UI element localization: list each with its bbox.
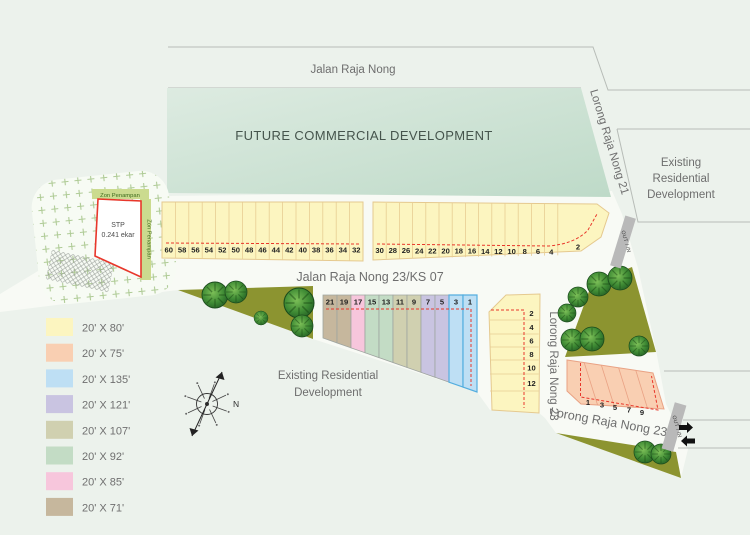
lot-number: 21 bbox=[326, 298, 335, 307]
site-plan-map: Jalan Raja Nong FUTURE COMMERCIAL DEVELO… bbox=[0, 0, 750, 535]
tree-icon bbox=[629, 336, 649, 356]
lot-number: 8 bbox=[529, 350, 533, 359]
legend-swatch bbox=[46, 472, 73, 490]
road-jalan-raja-nong-label: Jalan Raja Nong bbox=[310, 64, 395, 76]
lot-number: 3 bbox=[454, 298, 458, 307]
legend-swatch bbox=[46, 421, 73, 439]
site-plan-page: Jalan Raja Nong FUTURE COMMERCIAL DEVELO… bbox=[0, 0, 750, 535]
lot-cell bbox=[435, 295, 449, 382]
tree-icon bbox=[580, 327, 604, 351]
buffer-right-label: Zon Penampan bbox=[146, 219, 152, 259]
lot-number: 38 bbox=[312, 246, 320, 255]
compass-tick bbox=[184, 395, 186, 397]
compass-tick bbox=[185, 413, 187, 415]
lot-cell bbox=[463, 295, 477, 392]
lot-number: 20 bbox=[441, 247, 449, 256]
lot-number: 6 bbox=[536, 247, 540, 256]
tree-icon bbox=[558, 304, 576, 322]
compass-north-label: N bbox=[233, 399, 239, 409]
lot-number: 48 bbox=[245, 246, 253, 255]
lot-number: 15 bbox=[368, 298, 377, 307]
lot-number: 18 bbox=[455, 247, 463, 256]
lot-number: 17 bbox=[354, 298, 362, 307]
lot-number: 11 bbox=[396, 298, 405, 307]
lot-number: 22 bbox=[428, 246, 436, 255]
legend-swatch bbox=[46, 395, 73, 413]
lot-number: 58 bbox=[178, 246, 186, 255]
existing-right-line3: Development bbox=[647, 189, 716, 201]
area-stp: Zon Penampan Zon Penampan STP 0.241 ekar bbox=[29, 168, 179, 307]
legend-label: 20' X 107' bbox=[82, 425, 130, 437]
compass-tick bbox=[216, 424, 218, 426]
legend-label: 20' X 80' bbox=[82, 323, 124, 335]
lot-number: 34 bbox=[339, 246, 348, 255]
lot-number: 12 bbox=[494, 247, 502, 256]
road-jalan-23-label: Jalan Raja Nong 23/KS 07 bbox=[296, 270, 443, 284]
lot-block-right: 24681012 bbox=[489, 294, 540, 413]
lot-number: 3 bbox=[600, 401, 604, 410]
legend-label: 20' X 71' bbox=[82, 502, 124, 514]
existing-left-line2: Development bbox=[294, 387, 363, 399]
legend-label: 20' X 75' bbox=[82, 348, 124, 360]
tree-icon bbox=[225, 281, 247, 303]
tree-icon bbox=[291, 315, 313, 337]
legend-label: 20' X 121' bbox=[82, 400, 130, 412]
lot-row-top-left: 605856545250484644424038363432 bbox=[162, 202, 363, 261]
lot-number: 24 bbox=[415, 246, 424, 255]
legend-swatch bbox=[46, 447, 73, 465]
lot-row-top-right: 30282624222018161412108642 bbox=[373, 202, 609, 260]
tree-icon bbox=[254, 311, 268, 325]
legend-swatch bbox=[46, 318, 73, 336]
lot-number: 32 bbox=[352, 246, 360, 255]
lot-number: 54 bbox=[205, 246, 214, 255]
compass-tick bbox=[227, 393, 229, 395]
lot-number: 13 bbox=[382, 298, 390, 307]
existing-right-line2: Residential bbox=[653, 173, 710, 185]
lot-number: 14 bbox=[481, 247, 490, 256]
compass-tick bbox=[228, 411, 230, 413]
legend-swatch bbox=[46, 369, 73, 387]
lot-number: 9 bbox=[412, 298, 416, 307]
legend-swatch bbox=[46, 498, 73, 516]
lot-number: 6 bbox=[529, 337, 533, 346]
lot-number: 10 bbox=[507, 247, 515, 256]
stp-label-line1: STP bbox=[111, 222, 125, 229]
lot-number: 2 bbox=[576, 243, 580, 252]
lot-cell bbox=[421, 295, 435, 377]
lot-number: 28 bbox=[389, 246, 397, 255]
lot-number: 36 bbox=[325, 246, 333, 255]
future-commercial-label: FUTURE COMMERCIAL DEVELOPMENT bbox=[235, 128, 492, 143]
lot-number: 46 bbox=[258, 246, 266, 255]
compass-tick bbox=[198, 425, 200, 427]
tree-icon bbox=[608, 266, 632, 290]
legend-label: 20' X 85' bbox=[82, 477, 124, 489]
lot-number: 12 bbox=[527, 379, 535, 388]
lot-number: 16 bbox=[468, 247, 476, 256]
lot-number: 9 bbox=[640, 408, 644, 417]
stp-label-line2: 0.241 ekar bbox=[101, 232, 135, 239]
existing-left-line1: Existing Residential bbox=[278, 370, 378, 382]
tree-icon bbox=[568, 287, 588, 307]
lot-number: 26 bbox=[402, 246, 410, 255]
tree-icon bbox=[284, 288, 314, 318]
lot-number: 50 bbox=[231, 246, 239, 255]
area-future-commercial: FUTURE COMMERCIAL DEVELOPMENT bbox=[167, 88, 611, 197]
lot-number: 7 bbox=[627, 406, 631, 415]
lot-number: 42 bbox=[285, 246, 293, 255]
lot-number: 52 bbox=[218, 246, 226, 255]
row-top-left-numbers: 605856545250484644424038363432 bbox=[164, 246, 360, 255]
lot-number: 40 bbox=[298, 246, 306, 255]
lot-cell bbox=[407, 295, 421, 372]
lot-number: 44 bbox=[272, 246, 281, 255]
tree-icon bbox=[587, 272, 611, 296]
tree-icon bbox=[202, 282, 228, 308]
compass-tick bbox=[196, 382, 198, 384]
lot-number: 10 bbox=[527, 364, 535, 373]
legend-swatch bbox=[46, 344, 73, 362]
lot-number: 56 bbox=[191, 246, 199, 255]
legend-label: 20' X 135' bbox=[82, 374, 130, 386]
lot-number: 7 bbox=[426, 298, 430, 307]
existing-right-line1: Existing bbox=[661, 157, 701, 169]
compass-tick bbox=[214, 381, 216, 383]
buffer-top-label: Zon Penampan bbox=[100, 193, 140, 199]
legend-label: 20' X 92' bbox=[82, 451, 124, 463]
lot-number: 19 bbox=[340, 298, 348, 307]
lot-number: 30 bbox=[375, 246, 383, 255]
lot-number: 60 bbox=[164, 246, 172, 255]
lot-number: 2 bbox=[529, 309, 533, 318]
lot-number: 8 bbox=[523, 247, 527, 256]
